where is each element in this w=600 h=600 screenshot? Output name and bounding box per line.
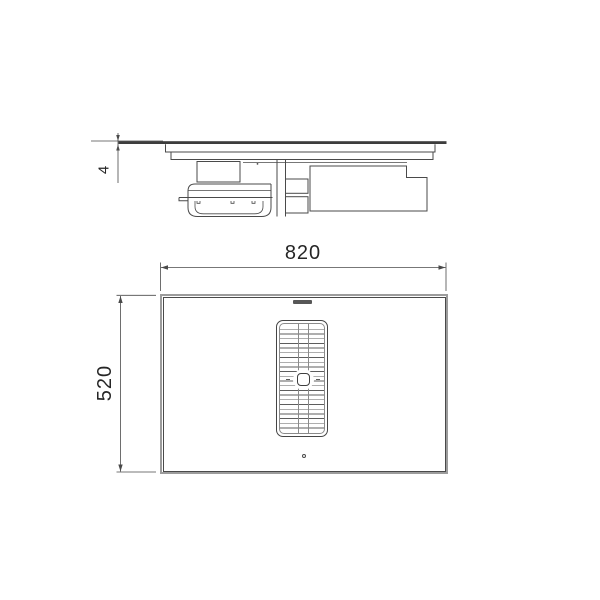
dimension-depth-label: 520 bbox=[95, 353, 115, 413]
duct-connector-upper bbox=[286, 179, 309, 193]
grille-knob-tick-right bbox=[316, 379, 320, 380]
dimension-glass-thickness bbox=[116, 133, 120, 183]
dim-520-arrow-top bbox=[118, 296, 122, 303]
dimension-width bbox=[161, 263, 447, 292]
dimension-depth bbox=[117, 295, 157, 472]
dim-4-arrow-up bbox=[116, 145, 120, 151]
technical-drawing-canvas: 820 520 4 bbox=[0, 0, 600, 600]
dim-820-arrow-left bbox=[161, 265, 168, 269]
dimension-width-label: 820 bbox=[270, 243, 336, 263]
extractor-grille bbox=[276, 320, 328, 437]
dimension-thickness-label: 4 bbox=[97, 150, 112, 190]
grille-center-knob bbox=[297, 373, 310, 386]
glass-top-profile bbox=[119, 141, 447, 144]
fixing-dot bbox=[257, 163, 259, 165]
brand-logo-icon bbox=[293, 300, 312, 304]
side-profile-view bbox=[91, 141, 447, 217]
dim-520-arrow-bottom bbox=[118, 465, 122, 472]
junction-box bbox=[197, 162, 240, 183]
hob-body-step2 bbox=[171, 152, 433, 160]
hob-body-step1 bbox=[166, 144, 436, 152]
air-duct bbox=[277, 160, 286, 217]
grille-knob-tick-left bbox=[286, 379, 290, 380]
power-indicator-icon bbox=[302, 454, 306, 458]
dim-4-arrow-down bbox=[116, 135, 120, 141]
filter-drawer-lip bbox=[179, 198, 273, 201]
dim-820-arrow-right bbox=[439, 265, 446, 269]
motor-housing bbox=[310, 166, 427, 211]
duct-connector-lower bbox=[286, 197, 309, 213]
filter-drawer-clips bbox=[197, 201, 255, 203]
